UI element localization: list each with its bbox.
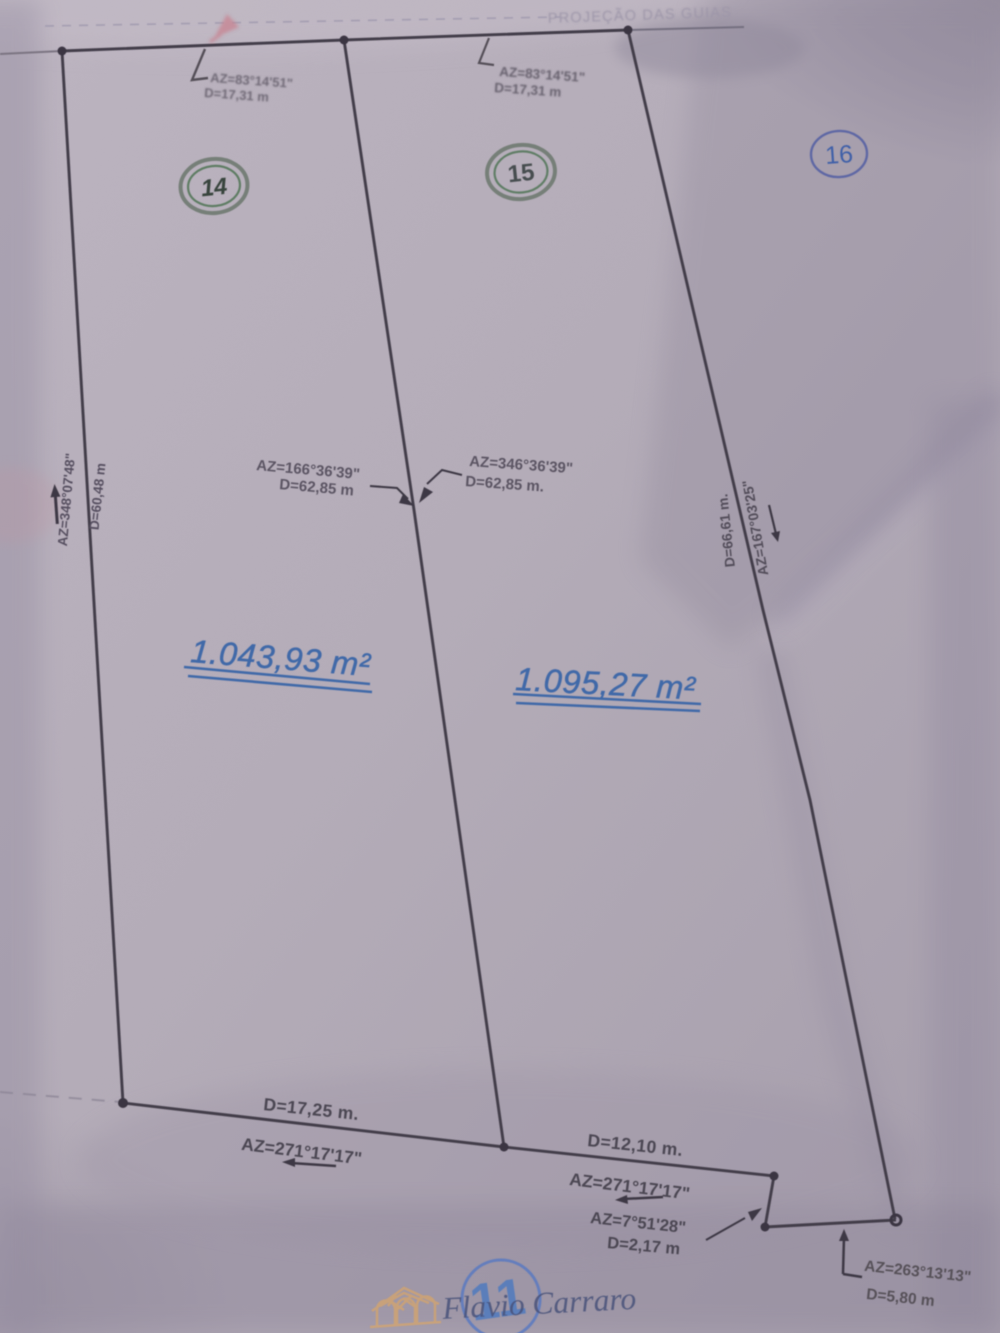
svg-text:16: 16 <box>824 140 854 170</box>
svg-text:15: 15 <box>506 159 535 189</box>
svg-text:14: 14 <box>200 173 229 202</box>
